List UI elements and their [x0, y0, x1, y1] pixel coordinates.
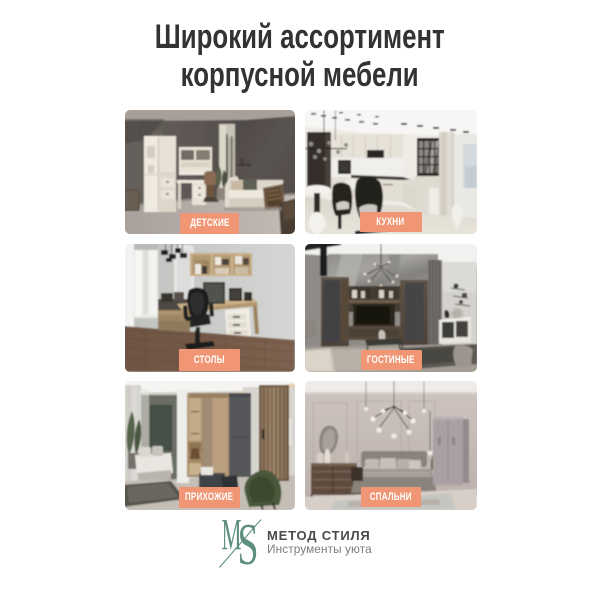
svg-text:S: S [238, 511, 259, 569]
